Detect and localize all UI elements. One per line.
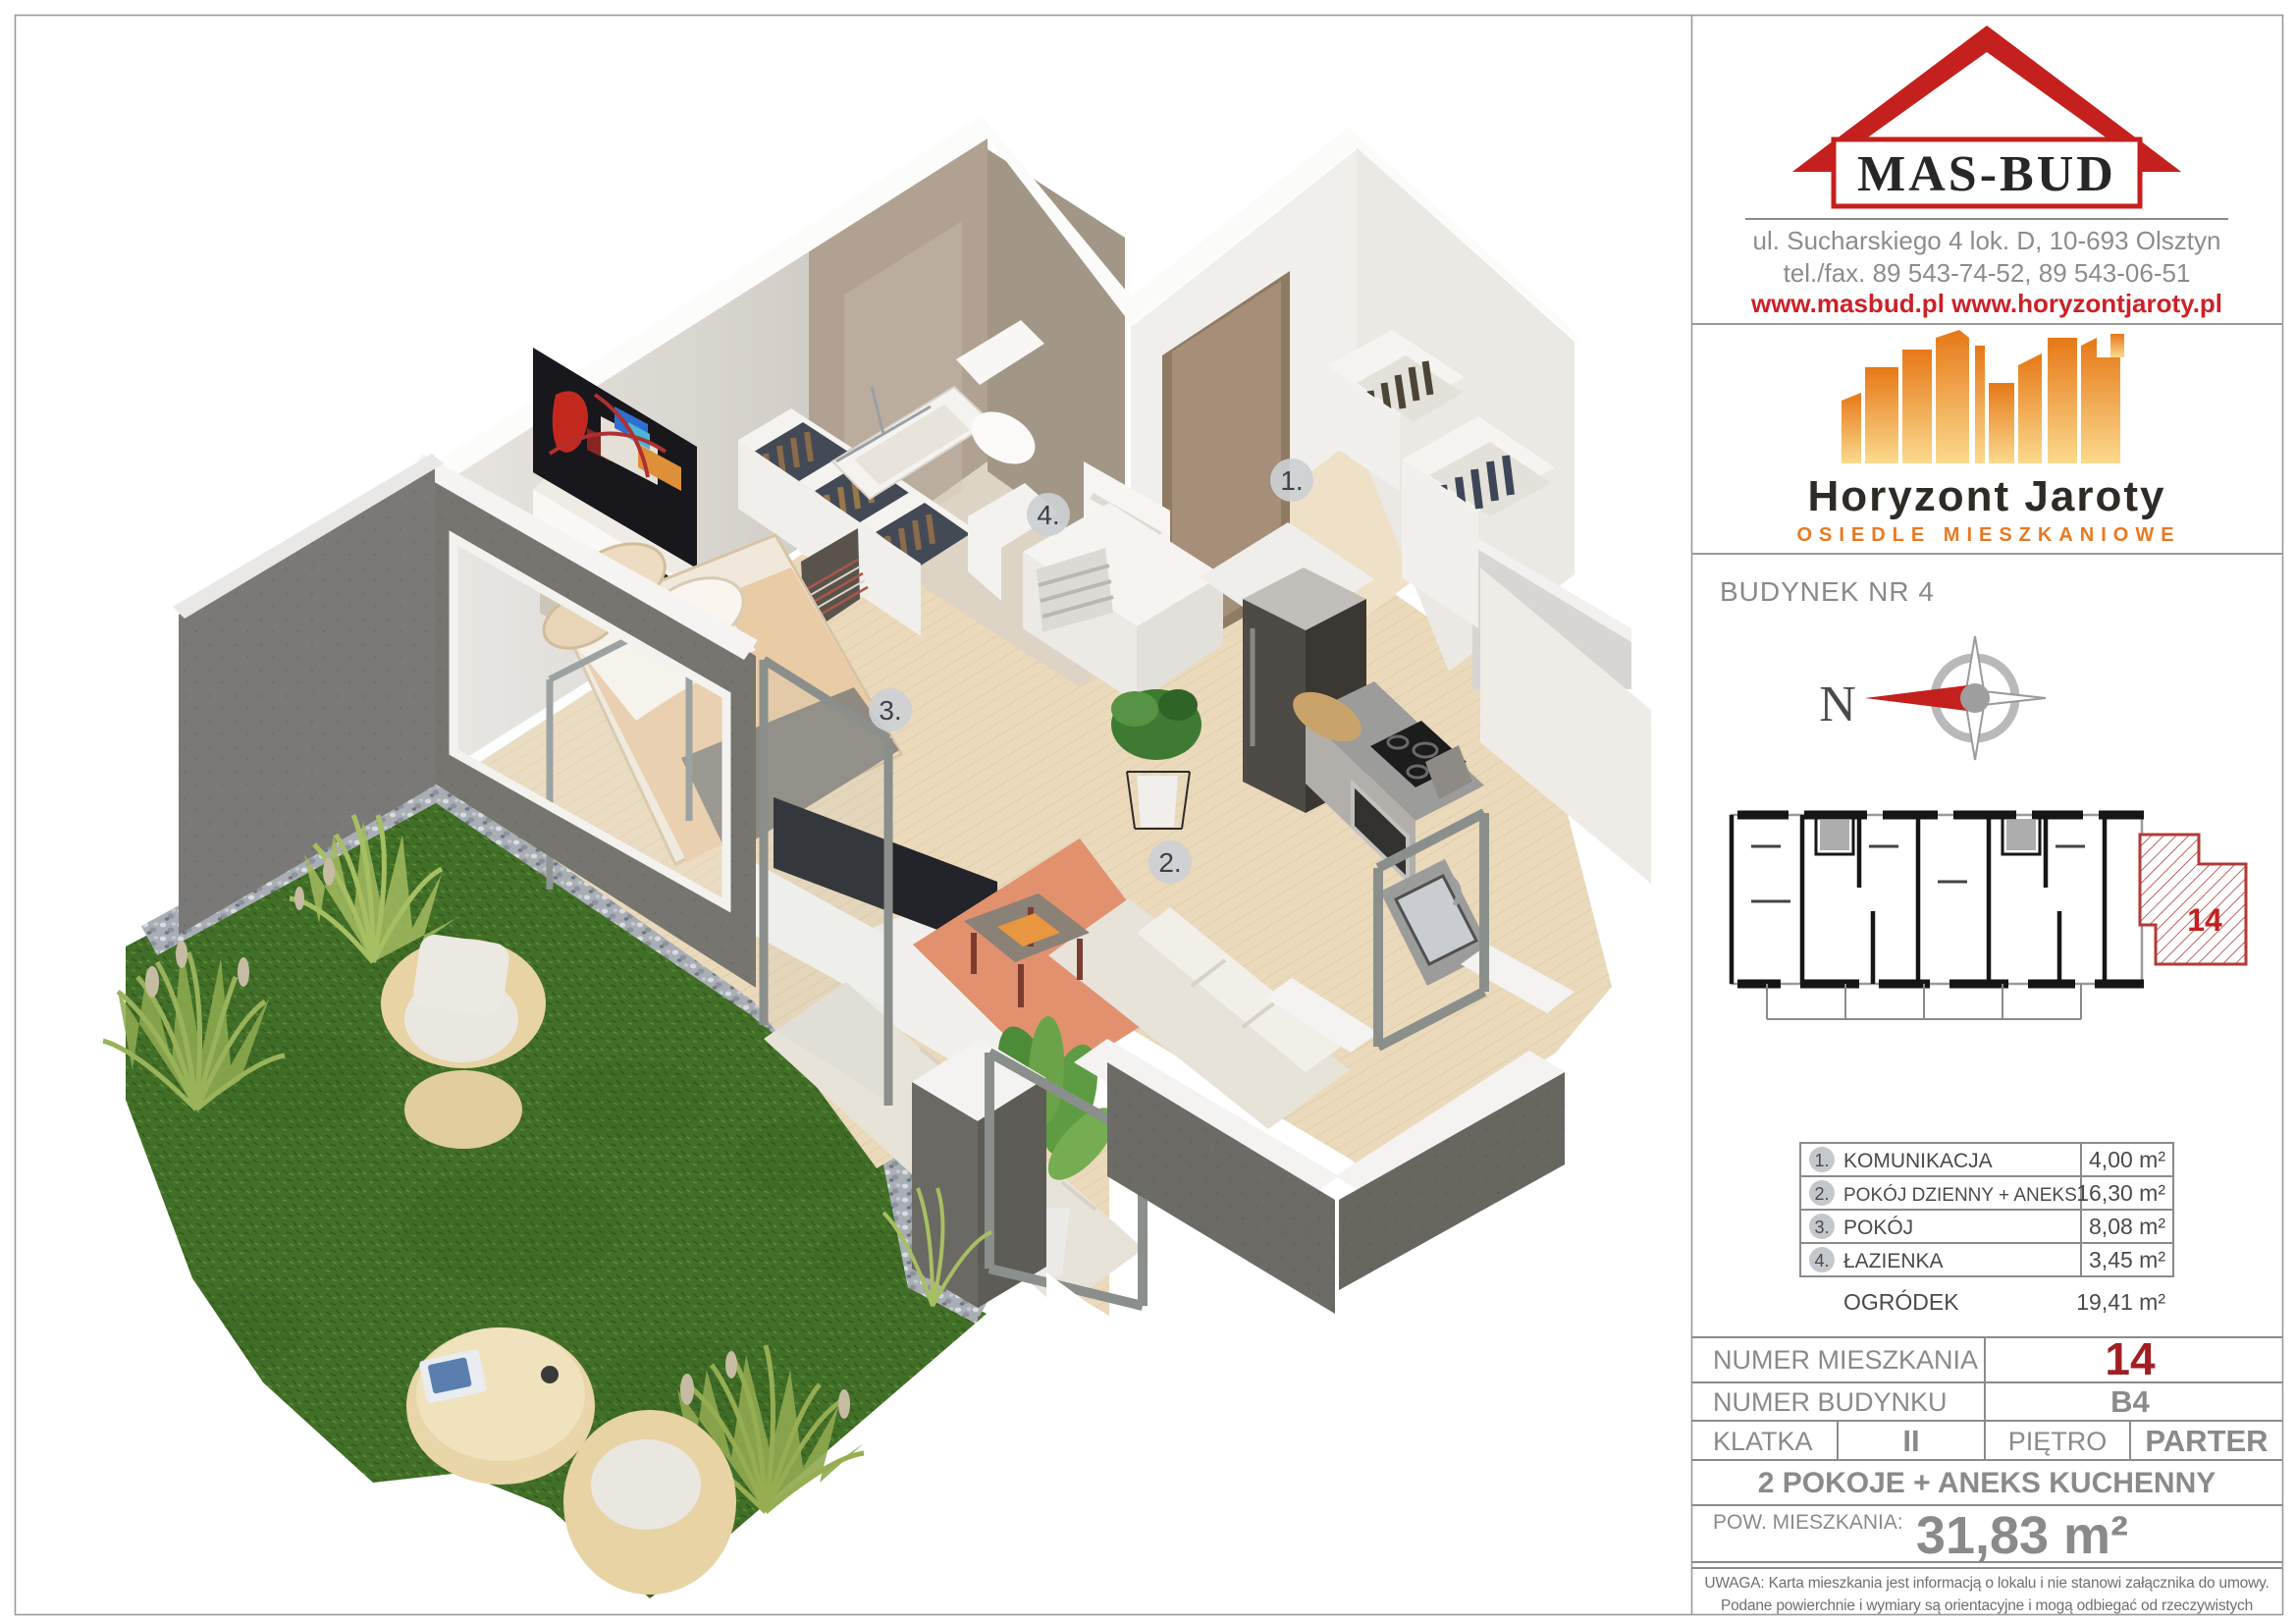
svg-text:3,45 m²: 3,45 m² [2089, 1247, 2165, 1272]
svg-text:2 POKOJE + ANEKS KUCHENNY: 2 POKOJE + ANEKS KUCHENNY [1758, 1467, 2216, 1499]
svg-text:4,00 m²: 4,00 m² [2089, 1147, 2165, 1172]
svg-text:tel./fax. 89 543-74-52, 89 543: tel./fax. 89 543-74-52, 89 543-06-51 [1784, 258, 2191, 288]
svg-text:POW. MIESZKANIA:: POW. MIESZKANIA: [1713, 1511, 1903, 1534]
svg-text:PARTER: PARTER [2145, 1424, 2268, 1458]
svg-text:14: 14 [2105, 1333, 2156, 1384]
svg-text:OSIEDLE MIESZKANIOWE: OSIEDLE MIESZKANIOWE [1796, 524, 2180, 546]
svg-text:2.: 2. [1814, 1184, 1829, 1204]
svg-text:16,30 m²: 16,30 m² [2076, 1180, 2165, 1206]
svg-text:www.masbud.pl www.horyzontjar: www.masbud.pl www.horyzontjaroty.pl [1750, 289, 2222, 318]
svg-text:PIĘTRO: PIĘTRO [2008, 1427, 2108, 1456]
svg-text:NUMER BUDYNKU: NUMER BUDYNKU [1713, 1387, 1948, 1417]
svg-text:1.: 1. [1814, 1151, 1829, 1170]
svg-text:3.: 3. [879, 695, 901, 726]
svg-text:Horyzont Jaroty: Horyzont Jaroty [1808, 472, 2166, 520]
svg-text:ul. Sucharskiego 4 lok. D, 10-: ul. Sucharskiego 4 lok. D, 10-693 Olszty… [1753, 226, 2221, 255]
svg-text:II: II [1902, 1424, 1919, 1458]
svg-text:Podane powierchnie i wymiary s: Podane powierchnie i wymiary są orientac… [1721, 1597, 2253, 1614]
svg-text:BUDYNEK NR 4: BUDYNEK NR 4 [1720, 576, 1935, 607]
svg-text:2.: 2. [1158, 847, 1181, 878]
svg-text:N: N [1819, 676, 1856, 732]
svg-text:KLATKA: KLATKA [1713, 1427, 1813, 1456]
svg-text:14: 14 [2187, 902, 2222, 938]
svg-text:NUMER MIESZKANIA: NUMER MIESZKANIA [1713, 1345, 1978, 1375]
svg-text:OGRÓDEK: OGRÓDEK [1843, 1289, 1959, 1315]
svg-text:8,08 m²: 8,08 m² [2089, 1214, 2165, 1239]
svg-text:4.: 4. [1037, 500, 1059, 530]
svg-text:POKÓJ: POKÓJ [1843, 1217, 1913, 1239]
svg-text:KOMUNIKACJA: KOMUNIKACJA [1843, 1150, 1993, 1172]
svg-text:19,41 m²: 19,41 m² [2076, 1289, 2165, 1315]
svg-text:POKÓJ DZIENNY + ANEKS: POKÓJ DZIENNY + ANEKS [1843, 1184, 2077, 1206]
svg-text:4.: 4. [1814, 1251, 1829, 1271]
svg-text:UWAGA: Karta mieszkania jest i: UWAGA: Karta mieszkania jest informacją … [1704, 1575, 2269, 1592]
svg-text:31,83 m²: 31,83 m² [1916, 1506, 2128, 1565]
svg-text:ŁAZIENKA: ŁAZIENKA [1843, 1250, 1944, 1272]
svg-text:1.: 1. [1280, 465, 1303, 496]
svg-text:MAS-BUD: MAS-BUD [1857, 146, 2116, 202]
svg-text:3.: 3. [1814, 1217, 1829, 1237]
svg-text:B4: B4 [2110, 1384, 2150, 1419]
